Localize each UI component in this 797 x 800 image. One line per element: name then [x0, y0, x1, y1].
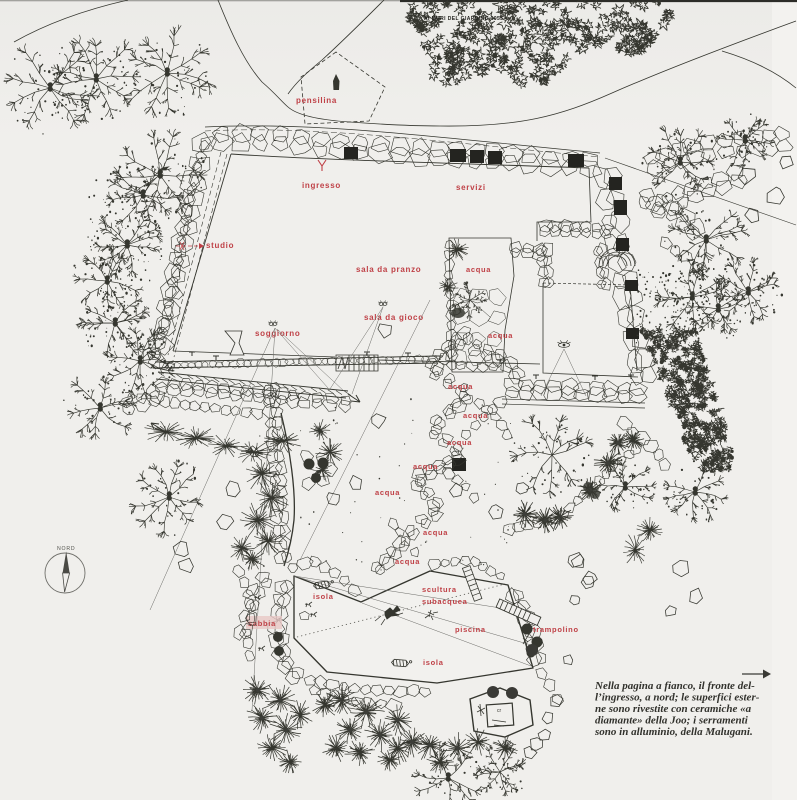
svg-text:isola: isola [423, 658, 444, 667]
svg-text:acqua: acqua [423, 528, 448, 537]
svg-text:sabbia: sabbia [248, 619, 276, 628]
svg-text:acqua: acqua [466, 265, 491, 274]
svg-text:NORD: NORD [57, 546, 75, 552]
svg-text:sala da pranzo: sala da pranzo [356, 265, 421, 274]
svg-text:acqua: acqua [447, 438, 472, 447]
svg-text:studio: studio [206, 241, 234, 250]
svg-text:trampolino: trampolino [533, 625, 579, 634]
svg-text:acqua: acqua [463, 411, 488, 420]
svg-text:acqua: acqua [448, 382, 473, 391]
svg-text:scultura: scultura [422, 585, 457, 594]
svg-text:acqua: acqua [413, 462, 438, 471]
svg-text:servizi: servizi [456, 183, 486, 192]
svg-text:acqua: acqua [488, 331, 513, 340]
svg-text:isola: isola [313, 592, 334, 601]
svg-text:sala da gioco: sala da gioco [364, 313, 424, 322]
svg-text:ingresso: ingresso [302, 181, 341, 190]
svg-text:Nella pagina a fianco, il fron: Nella pagina a fianco, il fronte del-l’i… [594, 680, 760, 738]
svg-text:soggiorno: soggiorno [255, 329, 300, 338]
svg-text:pensilina: pensilina [296, 96, 337, 105]
svg-text:acqua: acqua [395, 557, 420, 566]
svg-text:AI MURI DEL GIARDINO 1955: AI MURI DEL GIARDINO 1955 [424, 16, 503, 22]
svg-text:acqua: acqua [375, 488, 400, 497]
svg-text:subacquea: subacquea [422, 597, 468, 606]
svg-text:piscina: piscina [455, 625, 486, 634]
svg-text:cr: cr [497, 708, 502, 714]
